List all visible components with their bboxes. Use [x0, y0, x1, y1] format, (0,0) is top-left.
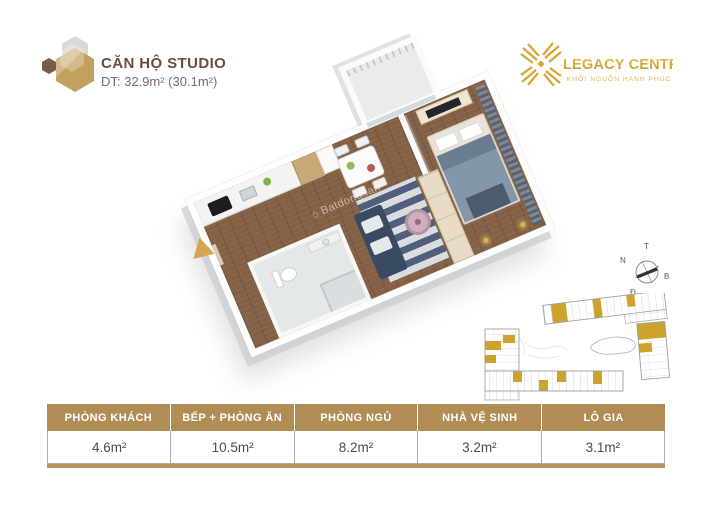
- plate: [366, 163, 376, 173]
- brand-x-icon: [520, 42, 562, 91]
- col-kitchen-value: 10.5m²: [170, 431, 293, 463]
- house-icon: ⌂: [310, 207, 321, 221]
- table-value-row: 4.6m² 10.5m² 8.2m² 3.2m² 3.1m²: [47, 431, 665, 464]
- plate: [345, 160, 355, 170]
- col-balcony-value: 3.1m²: [541, 431, 664, 463]
- bathroom-vanity: [307, 231, 342, 253]
- wall-lamp: [483, 237, 490, 244]
- room-area-table: PHÒNG KHÁCH BẾP + PHÒNG ĂN PHÒNG NGỦ NHÀ…: [47, 404, 665, 468]
- col-bathroom-value: 3.2m²: [417, 431, 540, 463]
- table-decor: [414, 218, 422, 226]
- compass-icon: T N B Đ: [618, 242, 676, 300]
- col-bathroom-header: NHÀ VỆ SINH: [418, 404, 542, 431]
- sofa-cushion: [361, 215, 384, 235]
- sofa-cushion: [370, 236, 393, 256]
- col-balcony-header: LÔ GIA: [542, 404, 665, 431]
- table-header-row: PHÒNG KHÁCH BẾP + PHÒNG ĂN PHÒNG NGỦ NHÀ…: [47, 404, 665, 431]
- shower-area: [319, 269, 366, 311]
- balcony-railing: [346, 43, 415, 77]
- compass-label-north: B: [664, 272, 669, 281]
- brand-name: LEGACY CENTRAL: [563, 57, 673, 73]
- col-living-value: 4.6m²: [48, 431, 170, 463]
- unit-title: CĂN HỘ STUDIO: [101, 55, 226, 72]
- compass-label-west: T: [644, 242, 649, 251]
- unit-area-label: DT: 32.9m² (30.1m²): [101, 74, 217, 89]
- hexagon-brown-icon: [42, 58, 56, 74]
- col-kitchen-header: BẾP + PHÒNG ĂN: [171, 404, 295, 431]
- col-bedroom-header: PHÒNG NGỦ: [295, 404, 419, 431]
- compass-label-south: N: [620, 256, 626, 265]
- brand-tagline: KHỞI NGUỒN HẠNH PHÚC: [565, 76, 673, 83]
- wall-lamp: [520, 221, 527, 228]
- bathroom: [247, 224, 371, 339]
- page-background: { "unit_header": { "title": "CĂN HỘ STUD…: [0, 0, 712, 510]
- site-key-plan: [483, 293, 695, 410]
- wash-basin: [321, 237, 330, 246]
- col-living-header: PHÒNG KHÁCH: [47, 404, 171, 431]
- col-bedroom-value: 8.2m²: [294, 431, 417, 463]
